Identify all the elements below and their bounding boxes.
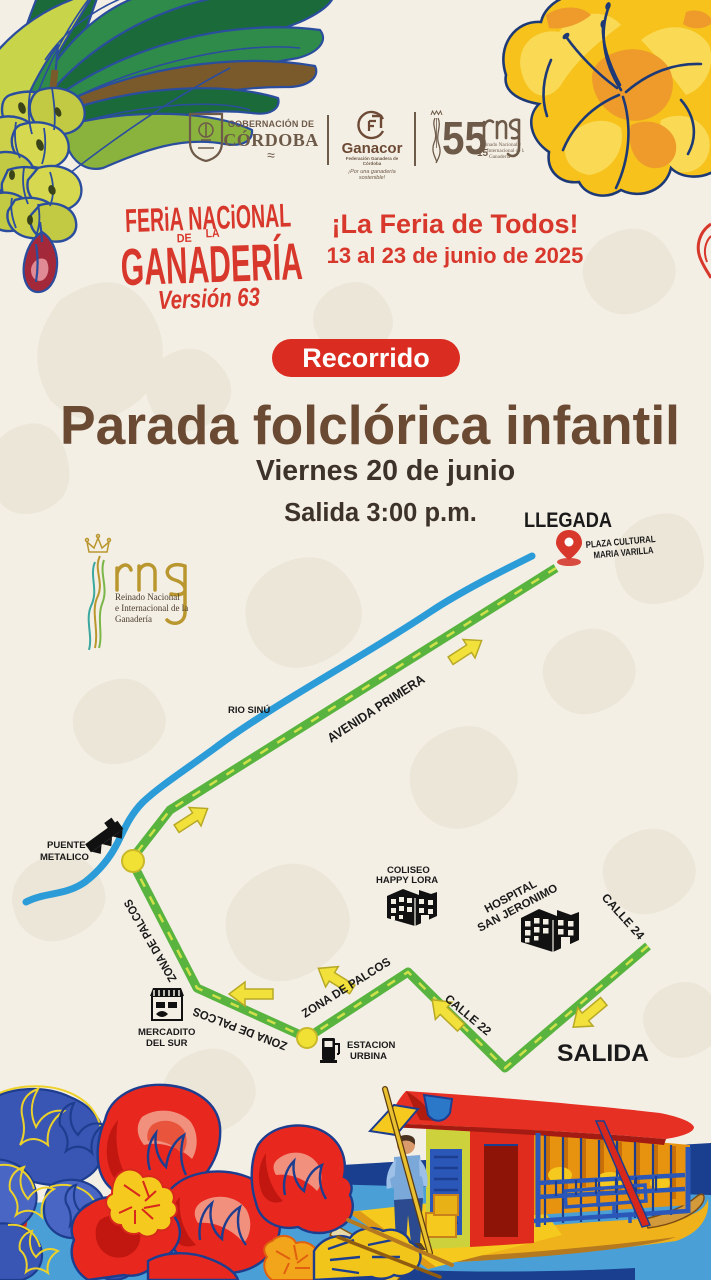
svg-text:HAPPY LORA: HAPPY LORA xyxy=(376,875,438,886)
svg-text:PUENTE: PUENTE xyxy=(47,840,86,851)
svg-text:METALICO: METALICO xyxy=(40,852,89,863)
svg-text:15: 15 xyxy=(477,148,489,159)
svg-text:Ganadería: Ganadería xyxy=(115,614,152,624)
svg-text:MERCADITO: MERCADITO xyxy=(138,1027,195,1038)
svg-text:DEL SUR: DEL SUR xyxy=(146,1038,188,1049)
svg-text:Parada folclórica infantil: Parada folclórica infantil xyxy=(60,394,680,452)
svg-text:Ganadería: Ganadería xyxy=(489,154,511,160)
svg-text:Versión 63: Versión 63 xyxy=(157,281,260,315)
svg-text:URBINA: URBINA xyxy=(350,1051,387,1062)
svg-text:RIO SINÚ: RIO SINÚ xyxy=(228,704,270,716)
svg-text:e Internacional de la: e Internacional de la xyxy=(115,603,188,613)
svg-text:LLEGADA: LLEGADA xyxy=(524,509,612,532)
svg-text:CALLE 24: CALLE 24 xyxy=(599,891,648,943)
svg-text:SALIDA: SALIDA xyxy=(557,1040,649,1067)
svg-text:ESTACION: ESTACION xyxy=(347,1040,396,1051)
svg-text:Reinado Nacional: Reinado Nacional xyxy=(115,592,180,602)
